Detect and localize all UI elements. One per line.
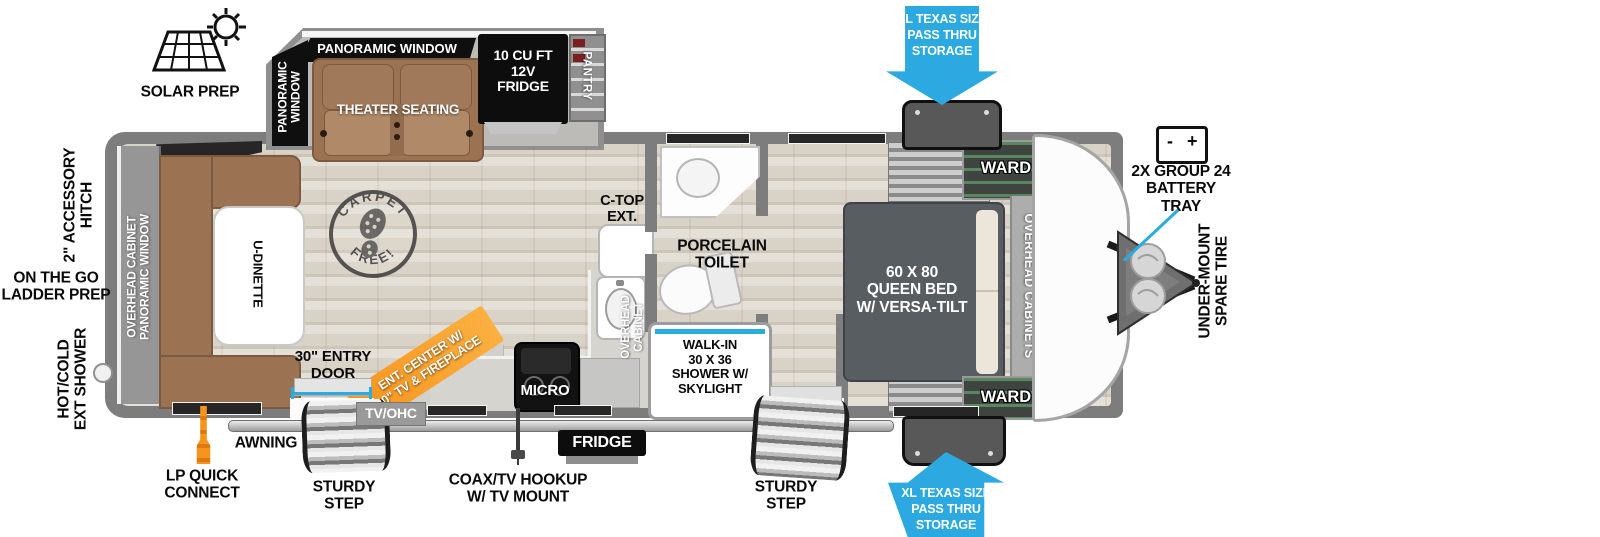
entry-door-label: 30" ENTRY DOOR	[295, 349, 371, 383]
tv-ohc-tag: TV/OHC	[356, 402, 426, 426]
sturdy-step-right-label: STURDY STEP	[755, 479, 818, 514]
panoramic-window-top-label: PANORAMIC WINDOW	[298, 42, 476, 57]
u-dinette-label: U-DINETTE	[250, 240, 265, 308]
rv-floorplan-diagram: SOLAR PREP OVERHEAD CABINET PANORAMIC WI…	[0, 0, 1600, 537]
pantry-label: PANTRY	[580, 52, 593, 101]
u-dinette-seat-bottom	[159, 355, 301, 409]
kitchen-window	[554, 405, 612, 416]
rivet	[984, 110, 989, 115]
coax-tip	[517, 459, 519, 465]
fridge-label: FRIDGE	[558, 434, 646, 452]
battery-minus: -	[1167, 131, 1173, 151]
bath-wall	[645, 136, 657, 232]
pass-thru-arrow-top: XL TEXAS SIZE PASS THRU STORAGE	[886, 6, 998, 105]
walk-in-shower: WALK-IN 30 X 36 SHOWER W/ SKYLIGHT	[648, 322, 772, 420]
ext-shower-label: HOT/COLD EXT SHOWER	[56, 324, 91, 434]
c-top-ext-label: C-TOP EXT.	[600, 193, 644, 225]
vanity-sink	[676, 158, 720, 198]
pass-thru-storage-door-top	[902, 100, 1002, 150]
theater-cupholder	[394, 122, 400, 128]
panoramic-window-side-label: PANORAMIC WINDOW	[277, 47, 304, 147]
entry-steps-right	[749, 395, 850, 482]
porcelain-toilet-label: PORCELAIN TOILET	[677, 238, 766, 273]
bath-window	[666, 133, 750, 144]
coax-hookup-icon	[516, 408, 520, 454]
door-measure-line	[293, 392, 371, 395]
kitchen-window	[427, 405, 487, 416]
walk-in-shower-label: WALK-IN 30 X 36 SHOWER W/ SKYLIGHT	[651, 338, 769, 396]
rear-cabinet-label: OVERHEAD CABINET PANORAMIC WINDOW	[126, 152, 153, 402]
carpet-free-stamp: CARPET FREE!	[327, 188, 419, 280]
battery-plus: +	[1187, 131, 1197, 151]
theater-armrest-dot	[466, 130, 473, 137]
rivet	[915, 110, 920, 115]
stove-glass	[521, 348, 571, 374]
kitchen-overhead-cabinet-label: OVERHEAD CABINET	[620, 277, 646, 377]
battery-icon: - +	[1156, 126, 1208, 164]
queen-bed-label: 60 X 80 QUEEN BED W/ VERSA-TILT	[857, 264, 968, 316]
fridge-12v-label: 10 CU FT 12V FRIDGE	[478, 48, 568, 95]
micro-stove	[514, 342, 580, 412]
accessory-hitch-label: 2" ACCESSORY HITCH	[62, 140, 97, 270]
pillow-divider	[976, 290, 998, 292]
pass-thru-top-label: XL TEXAS SIZE PASS THRU STORAGE	[886, 11, 998, 59]
battery-tray-label: 2X GROUP 24 BATTERY TRAY	[1131, 163, 1230, 215]
fridge-tag: FRIDGE	[558, 430, 646, 456]
coax-tv-label: COAX/TV HOOKUP W/ TV MOUNT	[449, 472, 587, 507]
fridge-12v-base	[484, 122, 562, 134]
ladder-prep-label: ON THE GO LADDER PREP	[2, 270, 111, 305]
pantry-item	[573, 39, 585, 47]
coax-connector	[511, 450, 525, 459]
solar-prep-label: SOLAR PREP	[141, 83, 240, 100]
micro-label: MICRO	[512, 383, 578, 400]
rivet	[988, 451, 993, 456]
bed-pillows	[976, 210, 998, 374]
ext-shower-knob	[93, 363, 113, 383]
shower-skylight-strip	[655, 329, 765, 334]
tv-ohc-label: TV/OHC	[357, 406, 425, 422]
solar-prep-icon	[148, 6, 252, 82]
spare-tire-label: UNDER-MOUNT SPARE TIRE	[1197, 211, 1232, 351]
theater-seating: THEATER SEATING	[312, 58, 484, 162]
theater-armrest-dot	[320, 130, 327, 137]
awning-label: AWNING	[235, 434, 298, 451]
sturdy-step-left-label: STURDY STEP	[313, 479, 376, 514]
pass-thru-bottom-label: XL TEXAS SIZE PASS THRU STORAGE	[888, 485, 1004, 533]
dinette-window	[172, 402, 262, 415]
fridge-12v-box: 10 CU FT 12V FRIDGE	[478, 34, 568, 124]
theater-cupholder	[394, 134, 400, 140]
door-measure-tick	[291, 387, 294, 399]
theater-seating-label: THEATER SEATING	[314, 102, 482, 117]
rivet	[915, 451, 920, 456]
bedroom-window	[788, 133, 886, 144]
lp-quick-connect-label: LP QUICK CONNECT	[164, 468, 239, 503]
door-measure-tick	[369, 387, 372, 399]
